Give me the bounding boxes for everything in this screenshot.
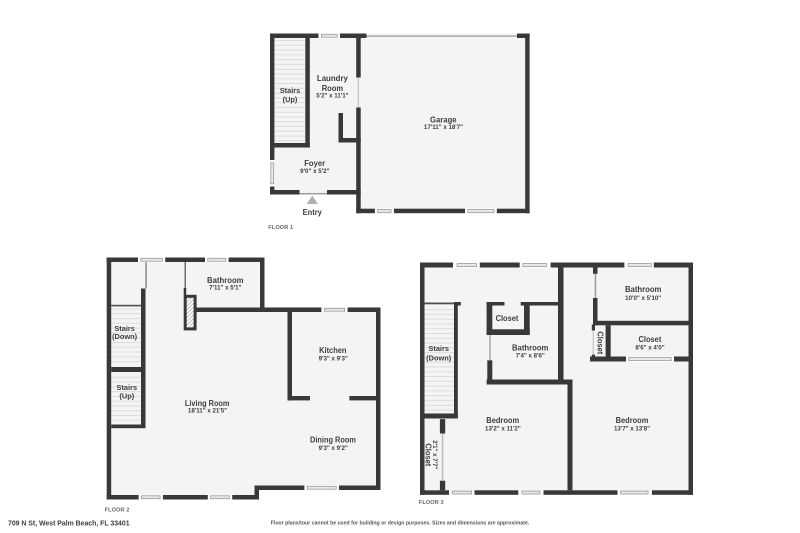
svg-text:Kitchen: Kitchen	[319, 345, 346, 355]
svg-text:9'3" x 9'3": 9'3" x 9'3"	[319, 355, 348, 362]
svg-text:Stairs: Stairs	[280, 86, 301, 95]
svg-text:Bathroom: Bathroom	[512, 343, 549, 353]
svg-text:Garage: Garage	[430, 114, 457, 124]
svg-text:Closet: Closet	[639, 334, 662, 344]
svg-text:Closet: Closet	[496, 313, 519, 323]
svg-text:17'11" x 18'7": 17'11" x 18'7"	[424, 124, 463, 131]
svg-text:9'3" x 9'2": 9'3" x 9'2"	[319, 445, 348, 452]
svg-text:18'11" x 21'5": 18'11" x 21'5"	[188, 408, 227, 415]
svg-text:Living Room: Living Room	[185, 398, 230, 408]
svg-text:Room: Room	[322, 83, 344, 93]
svg-text:13'2" x 11'2": 13'2" x 11'2"	[485, 426, 521, 433]
svg-text:7'11" x 5'1": 7'11" x 5'1"	[209, 285, 241, 292]
svg-text:Closet: Closet	[595, 331, 605, 354]
svg-text:8'6" x 4'0": 8'6" x 4'0"	[635, 344, 664, 351]
svg-text:(Up): (Up)	[119, 391, 134, 400]
svg-text:2'1" x 7'7": 2'1" x 7'7"	[431, 440, 438, 469]
svg-text:Bathroom: Bathroom	[207, 275, 244, 285]
svg-text:7'4" x 8'6": 7'4" x 8'6"	[516, 353, 545, 360]
svg-text:Foyer: Foyer	[304, 158, 325, 168]
svg-text:Stairs: Stairs	[428, 344, 449, 353]
svg-text:Bedroom: Bedroom	[486, 415, 519, 425]
svg-text:10'0" x 5'10": 10'0" x 5'10"	[625, 295, 661, 302]
svg-text:Bedroom: Bedroom	[616, 415, 649, 425]
svg-text:Entry: Entry	[303, 208, 323, 217]
svg-text:(Down): (Down)	[112, 332, 138, 341]
svg-text:Bathroom: Bathroom	[625, 284, 662, 294]
svg-text:FLOOR 2: FLOOR 2	[105, 507, 130, 513]
svg-text:FLOOR 3: FLOOR 3	[419, 500, 444, 506]
svg-text:Dining Room: Dining Room	[310, 435, 356, 445]
svg-text:Laundry: Laundry	[317, 73, 348, 83]
svg-text:709 N St, West Palm Beach, FL: 709 N St, West Palm Beach, FL 33401	[8, 521, 130, 528]
svg-text:13'7" x 13'8": 13'7" x 13'8"	[614, 426, 650, 433]
svg-text:5'2" x 11'1": 5'2" x 11'1"	[316, 93, 348, 100]
svg-text:(Down): (Down)	[426, 353, 452, 362]
svg-text:Floor plans/tour cannot be use: Floor plans/tour cannot be used for buil…	[271, 520, 530, 526]
svg-text:(Up): (Up)	[283, 95, 298, 104]
svg-text:9'0" x 5'2": 9'0" x 5'2"	[300, 168, 329, 175]
svg-text:FLOOR 1: FLOOR 1	[268, 225, 293, 231]
